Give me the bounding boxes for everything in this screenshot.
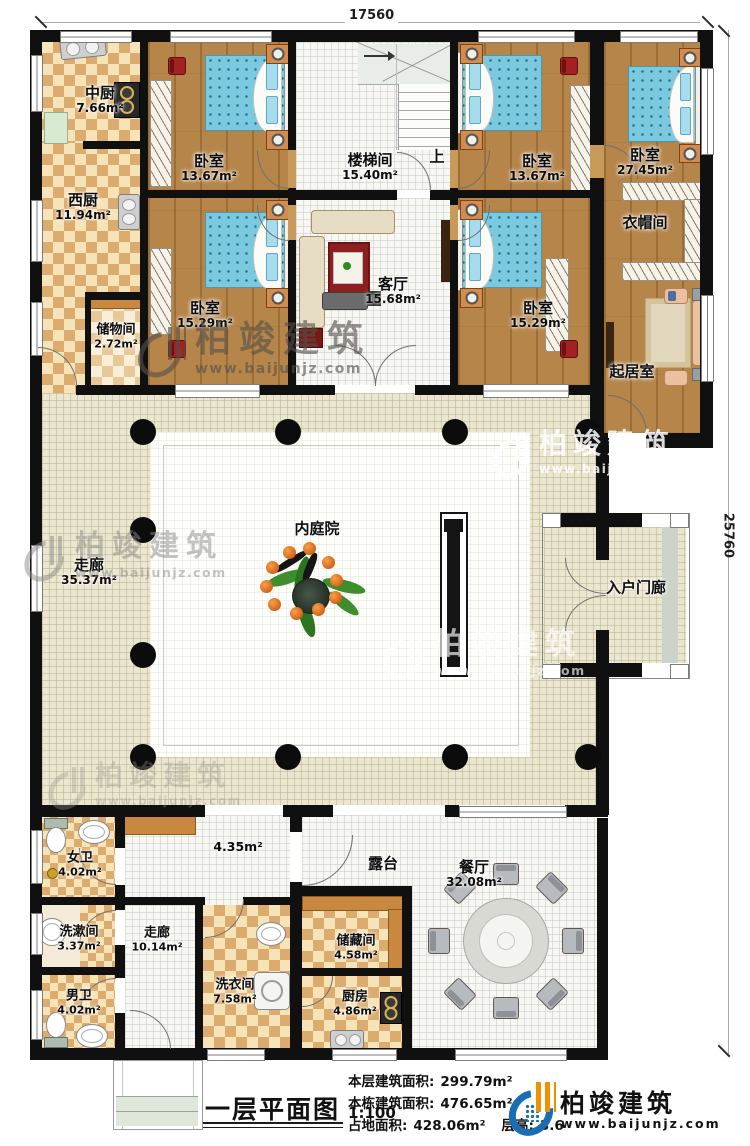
room-lutai-label: 露台 [368,856,398,873]
right-dimension-label: 25760 [721,513,736,559]
wall [402,886,412,1048]
room-cloakroom-label: 衣帽间 [622,215,667,232]
window [332,1049,397,1061]
side-cabinet [299,328,323,348]
plant-fruit [303,542,316,555]
room-chuwujian-label: 储物间2.72m² [94,324,137,351]
closet-hatch [150,80,172,187]
wall [85,292,140,300]
dining-chair [562,928,584,954]
room-neitingyuan-label: 内庭院 [294,521,339,538]
column [130,517,156,543]
porch-column [542,513,561,528]
room-nanwei-label: 男卫4.02m² [57,990,100,1017]
window [207,1049,265,1061]
wall [290,886,412,896]
plant-fruit [268,598,281,611]
hall-cabinet [118,816,196,835]
tv-cabinet [606,322,614,368]
chair [168,57,186,75]
room-bedroom-mr-label: 卧室15.29m² [510,300,566,330]
title-underline [203,1127,343,1128]
room-canting-label: 餐厅32.08m² [446,859,502,889]
room-bedroom-ml-label: 卧室15.29m² [177,300,233,330]
window [455,1049,567,1061]
wall [148,190,288,198]
stair-landing [358,44,452,85]
chair [560,57,578,75]
porch-column [670,664,689,679]
plant-fruit [312,603,325,616]
fridge [44,112,68,144]
wall [560,663,642,677]
wall [560,513,642,527]
wall [30,385,38,395]
room-xichu-label: 西厨11.94m² [55,192,111,222]
entry-step [116,1096,198,1111]
porch-column [670,513,689,528]
door-sill [288,150,296,188]
nightstand [460,130,483,150]
wall [42,967,115,975]
plant-fruit [266,561,279,574]
room-bedroom-tr-label: 卧室13.67m² [509,153,565,183]
sink [256,922,286,946]
stair-arrow-head [388,51,395,61]
armchair [664,370,688,386]
room-zoulang1-label: 走廊35.37m² [61,557,117,587]
column [130,642,156,668]
kitchen-sink [118,194,140,230]
closet-hatch [150,248,172,335]
dimension-tick [702,16,715,29]
kitchen-sink [330,1030,364,1049]
window [175,384,260,398]
nightstand [266,44,289,64]
cloakroom-wardrobe [622,262,702,281]
window [620,31,698,43]
window [701,295,714,382]
sofa [322,292,368,310]
wall [290,815,302,832]
sink [76,1024,108,1048]
plant-fruit [290,607,303,620]
plant-icon [343,262,351,270]
column [575,744,601,770]
toilet [44,1012,68,1046]
bed [628,66,700,142]
tv-cabinet [441,220,450,282]
plant-fruit [322,556,335,569]
wall [590,30,604,145]
floor-drain [47,868,58,879]
room-ruhumenlang-label: 入户门廊 [606,580,666,597]
sink [78,820,110,844]
room-nvwei-label: 女卫4.02m² [58,852,101,879]
nightstand [679,144,701,163]
wall [596,630,609,815]
door-sill [590,145,604,178]
stair-steps [398,84,453,150]
wall [430,190,458,200]
wall [646,433,713,448]
room-keting-label: 客厅15.68m² [365,276,421,306]
room-bedroom-tl-label: 卧室13.67m² [181,153,237,183]
window [701,68,714,155]
door-sill [450,205,458,240]
dining-chair [428,928,450,954]
wall [195,905,203,1048]
wall [30,30,713,42]
porch-column [542,664,561,679]
window [31,830,43,884]
column [442,419,468,445]
wall [458,190,590,198]
room-xishujian-label: 洗漱间3.37m² [57,926,100,953]
wall [302,968,402,976]
wall [115,1013,125,1048]
wall [42,897,115,905]
courtyard-screen [440,512,468,677]
stairs-up-label: 上 [429,149,444,166]
wall [596,438,609,560]
top-dimension-label: 17560 [345,8,398,23]
window [31,913,43,955]
bed [205,55,289,131]
wall [288,30,296,150]
door-sill [450,150,458,188]
nightstand [679,48,701,67]
room-cangchujian-label: 储藏间4.58m² [334,935,377,962]
rug [645,298,691,368]
wall [296,190,397,200]
brand-logo-icon [510,1082,558,1134]
door-sill [288,205,296,240]
window [478,31,575,43]
wall [288,188,296,205]
window [31,55,43,112]
stat-building-area: 本栋建筑面积:476.65m² [348,1092,528,1112]
room-qijushi-label: 起居室 [609,364,654,381]
window [31,200,43,262]
stat-floor-area: 本层建筑面积:299.79m² [348,1070,528,1090]
washing-machine [254,972,290,1010]
wall [83,141,140,149]
window [31,545,43,612]
bed [458,55,542,131]
room-zoulang2-label: 走廊10.14m² [131,927,182,954]
wall [450,240,458,393]
sofa [311,210,395,234]
window [170,31,272,43]
wall [115,815,125,848]
wall [140,30,148,393]
room-hall-area-label: 4.35m² [213,840,262,854]
window [483,384,569,398]
room-chufang-label: 厨房4.86m² [333,991,376,1018]
stair-arrow [364,55,388,57]
wall [290,882,302,1048]
plant-fruit [260,580,273,593]
entry-step [116,1111,198,1126]
wall [590,178,604,448]
room-xiyijian-label: 洗衣间7.58m² [213,979,256,1006]
plant-fruit [329,591,342,604]
wall [597,818,608,1060]
wall [450,30,458,150]
column [575,419,601,445]
room-stairwell-label: 楼梯间15.40m² [342,152,398,182]
room-bedroom-big-label: 卧室27.45m² [617,147,673,177]
sofa [299,236,325,328]
wall [288,240,296,393]
stair-rail [396,44,397,150]
title-underline [203,1122,343,1124]
window [459,806,567,818]
wall [565,805,608,817]
wall [115,945,125,978]
dining-table-center [497,932,515,950]
wall [445,805,459,817]
room-zhongchu-label: 中厨7.66m² [76,85,123,115]
nightstand [266,288,289,308]
column [442,744,468,770]
column [130,419,156,445]
plant-fruit [330,574,343,587]
plant-fruit [283,546,296,559]
brand-url: www.baijunjz.com [561,1116,721,1131]
toilet [44,818,68,852]
nightstand [266,130,289,150]
window [60,31,132,43]
column [275,744,301,770]
nightstand [460,44,483,64]
dining-chair [493,997,519,1019]
stove [380,992,402,1024]
wall [115,897,205,905]
column [275,419,301,445]
chair [560,340,578,358]
person-figure [668,291,676,301]
floor-plan-canvas: 17560 25760 [0,0,750,1146]
wall [85,292,91,393]
window [31,990,43,1040]
brand-name: 柏竣建筑 [560,1084,676,1120]
nightstand [460,288,483,308]
column [130,744,156,770]
closet-hatch [570,85,592,195]
chair [168,340,186,358]
